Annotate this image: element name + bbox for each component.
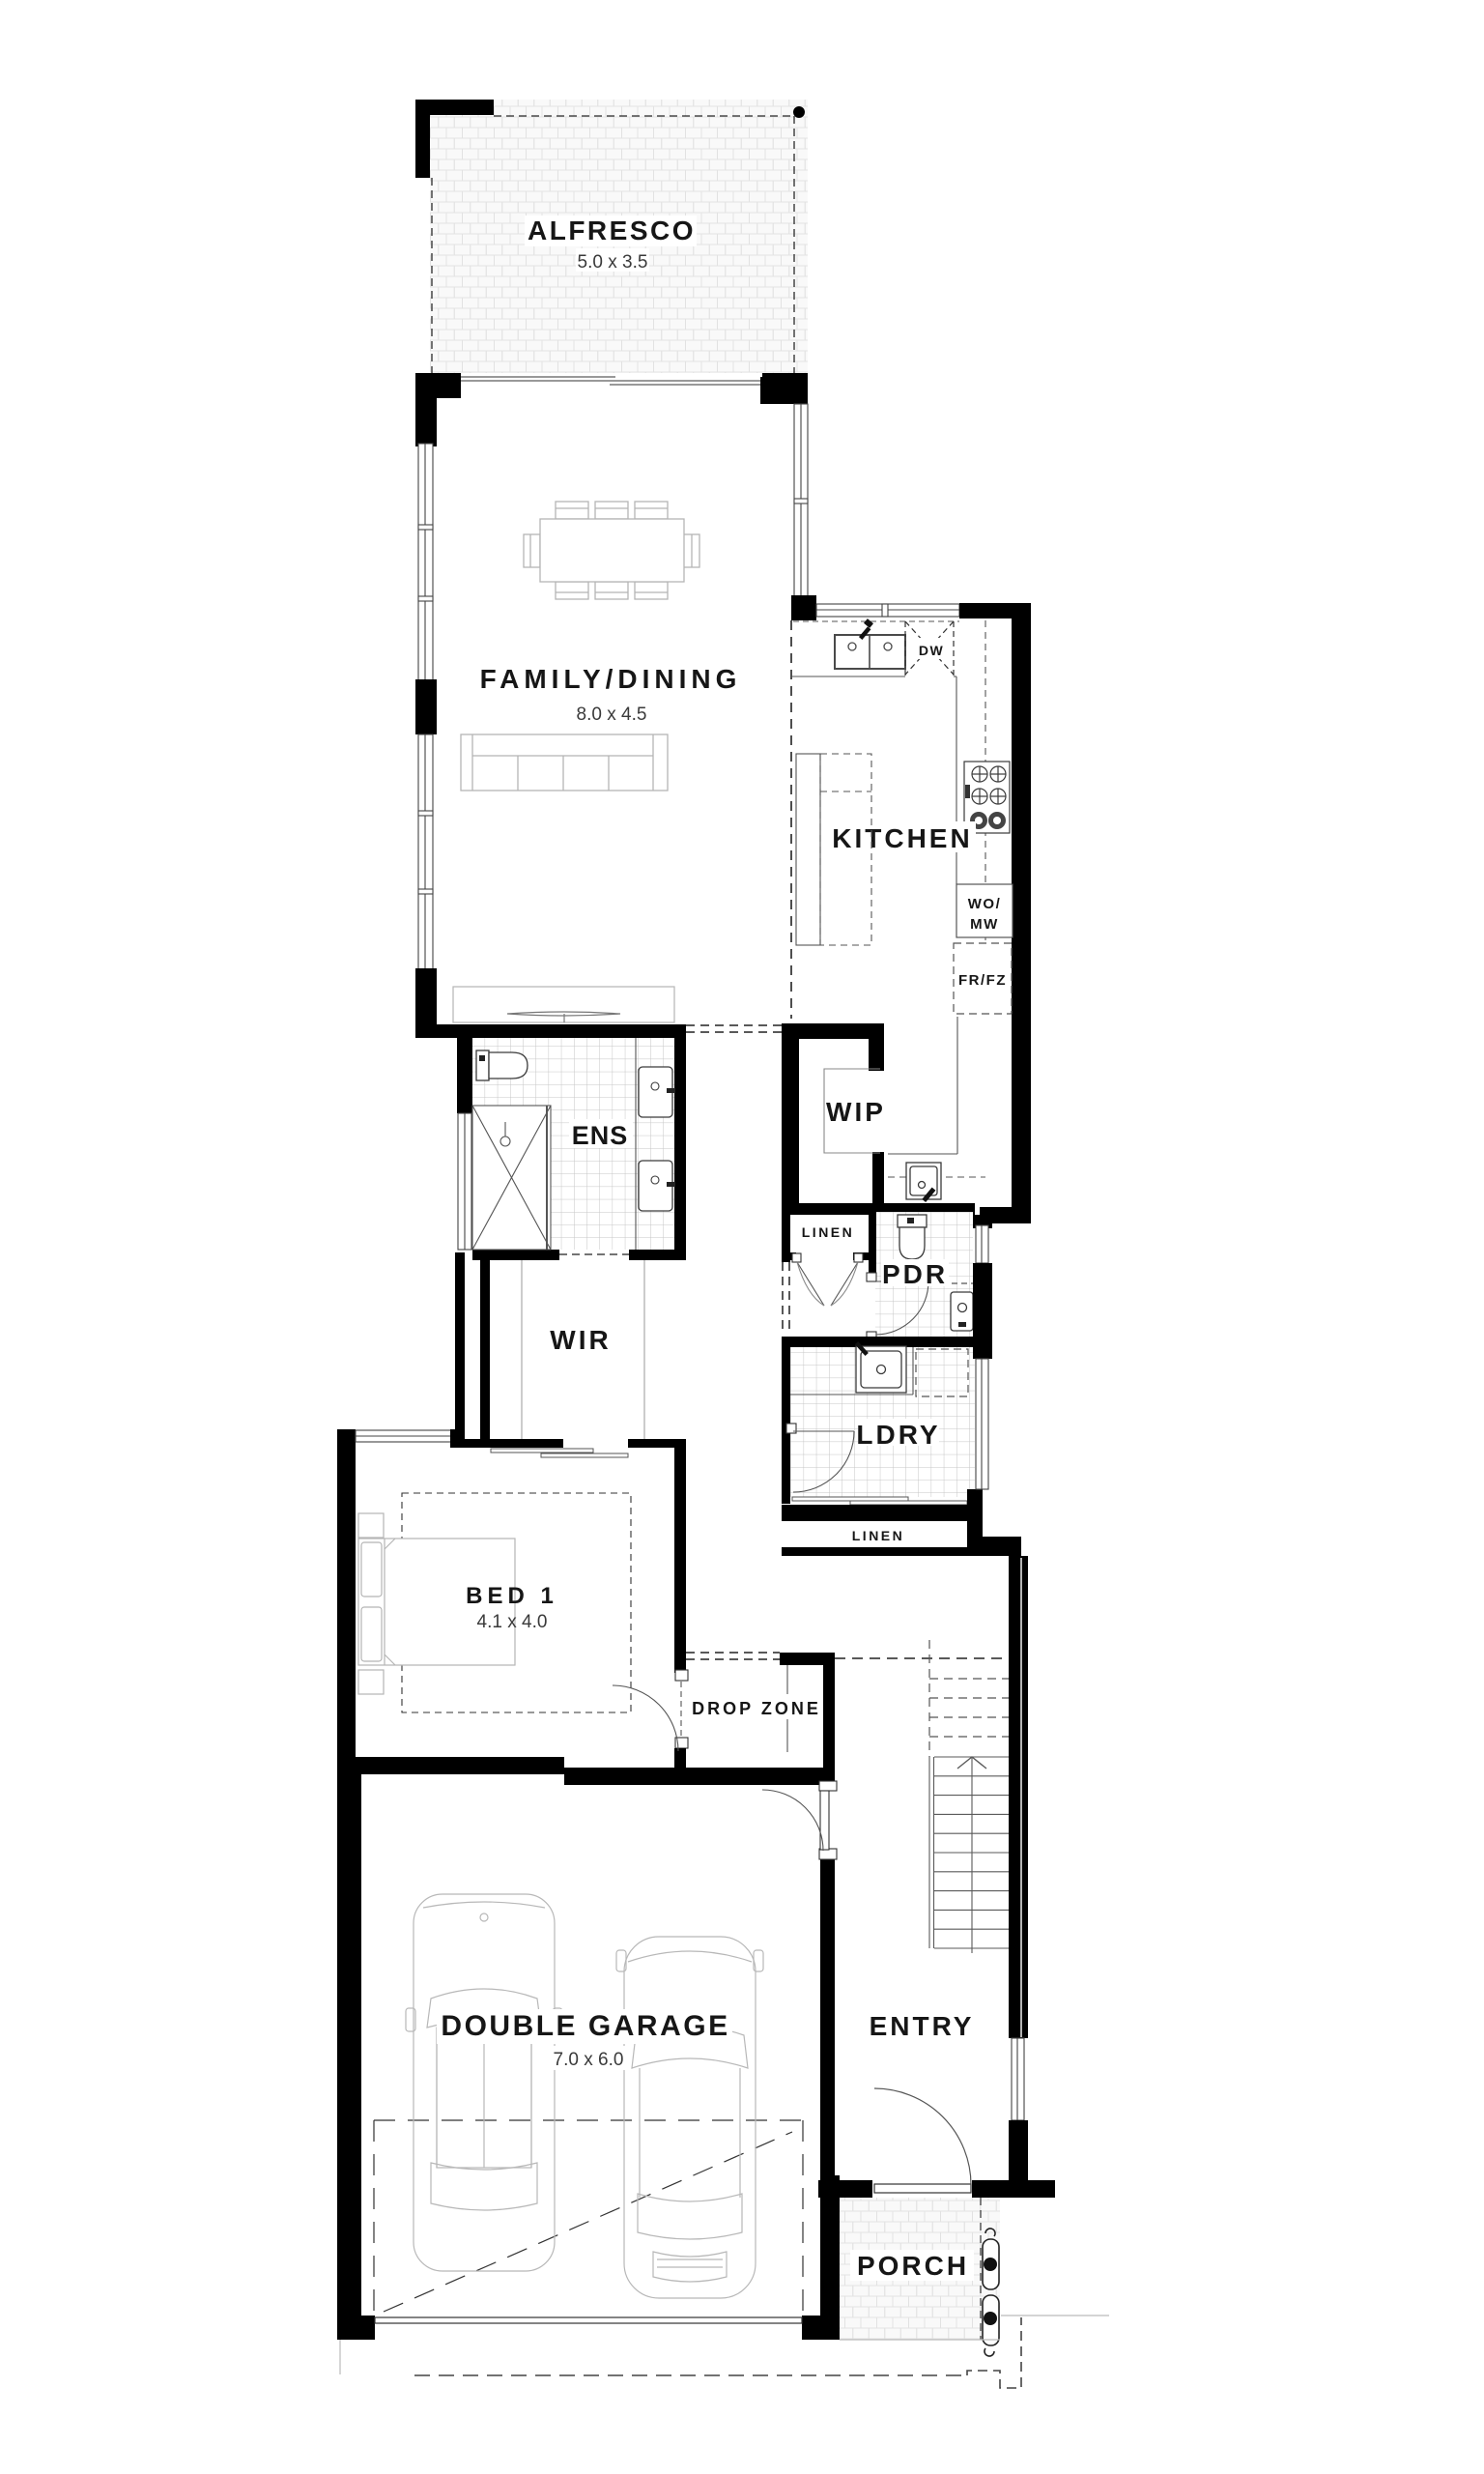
svg-text:FAMILY/DINING: FAMILY/DINING <box>480 664 742 694</box>
svg-text:WIR: WIR <box>550 1325 611 1355</box>
svg-text:BED 1: BED 1 <box>466 1583 558 1609</box>
svg-text:LINEN: LINEN <box>802 1224 855 1240</box>
svg-text:DROP ZONE: DROP ZONE <box>692 1699 821 1718</box>
svg-text:MW: MW <box>970 916 999 933</box>
svg-text:DOUBLE GARAGE: DOUBLE GARAGE <box>441 2010 729 2042</box>
svg-text:WIP: WIP <box>826 1097 886 1127</box>
svg-text:5.0 x 3.5: 5.0 x 3.5 <box>578 252 648 273</box>
svg-text:PDR: PDR <box>882 1259 948 1289</box>
svg-text:4.1 x 4.0: 4.1 x 4.0 <box>477 1612 548 1632</box>
svg-text:FR/FZ: FR/FZ <box>958 972 1007 989</box>
svg-text:LDRY: LDRY <box>856 1420 940 1450</box>
svg-text:PORCH: PORCH <box>857 2251 969 2281</box>
svg-text:DW: DW <box>919 643 944 658</box>
svg-text:WO/: WO/ <box>968 896 1002 912</box>
svg-text:ENS: ENS <box>572 1121 629 1150</box>
svg-text:ENTRY: ENTRY <box>870 2011 975 2041</box>
svg-text:7.0 x 6.0: 7.0 x 6.0 <box>554 2050 624 2070</box>
svg-text:ALFRESCO: ALFRESCO <box>528 216 696 245</box>
svg-text:KITCHEN: KITCHEN <box>832 823 972 853</box>
svg-text:8.0 x 4.5: 8.0 x 4.5 <box>577 705 647 725</box>
svg-text:LINEN: LINEN <box>852 1528 905 1543</box>
